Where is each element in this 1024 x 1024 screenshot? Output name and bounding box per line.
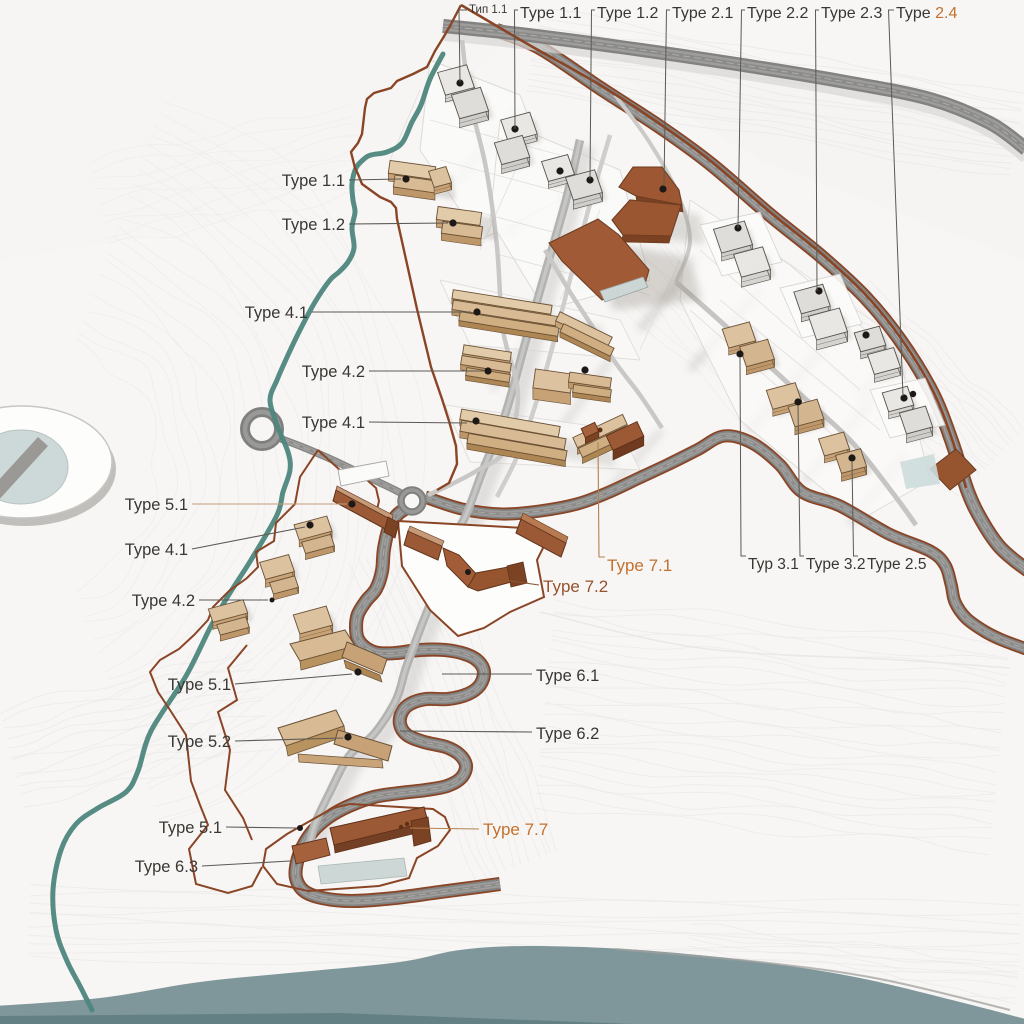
svg-text:Type 4.1: Type 4.1 — [302, 414, 365, 432]
svg-text:Type 2.5: Type 2.5 — [867, 556, 926, 573]
svg-text:Type 3.2: Type 3.2 — [806, 556, 865, 573]
svg-text:Type 2.4: Type 2.4 — [896, 5, 957, 22]
svg-text:Type 7.1: Type 7.1 — [607, 556, 672, 575]
svg-text:Type 5.1: Type 5.1 — [159, 819, 222, 837]
svg-text:Type 4.2: Type 4.2 — [132, 592, 195, 610]
svg-text:Type 2.2: Type 2.2 — [747, 5, 808, 22]
svg-text:Type 2.1: Type 2.1 — [672, 5, 733, 22]
svg-text:Type 4.1: Type 4.1 — [245, 304, 308, 322]
svg-text:Type 2.3: Type 2.3 — [821, 5, 882, 22]
svg-text:Type 1.2: Type 1.2 — [597, 5, 658, 22]
svg-text:Type 6.1: Type 6.1 — [536, 667, 599, 685]
svg-text:Type 1.2: Type 1.2 — [282, 216, 345, 234]
svg-text:Type 5.2: Type 5.2 — [168, 733, 231, 751]
svg-text:Type 1.1: Type 1.1 — [282, 172, 345, 190]
svg-text:Type 7.2: Type 7.2 — [543, 577, 608, 596]
svg-text:Type 4.2: Type 4.2 — [302, 363, 365, 381]
svg-text:Тип 1.1: Тип 1.1 — [469, 4, 507, 16]
svg-text:Type 1.1: Type 1.1 — [520, 5, 581, 22]
svg-text:Type 7.7: Type 7.7 — [483, 820, 548, 839]
svg-text:Type 6.2: Type 6.2 — [536, 725, 599, 743]
svg-text:Type 5.1: Type 5.1 — [168, 676, 231, 694]
svg-text:Type 4.1: Type 4.1 — [125, 541, 188, 559]
svg-text:Typ 3.1: Typ 3.1 — [748, 556, 799, 573]
svg-text:Type 6.3: Type 6.3 — [135, 858, 198, 876]
svg-text:Type 5.1: Type 5.1 — [125, 496, 188, 514]
